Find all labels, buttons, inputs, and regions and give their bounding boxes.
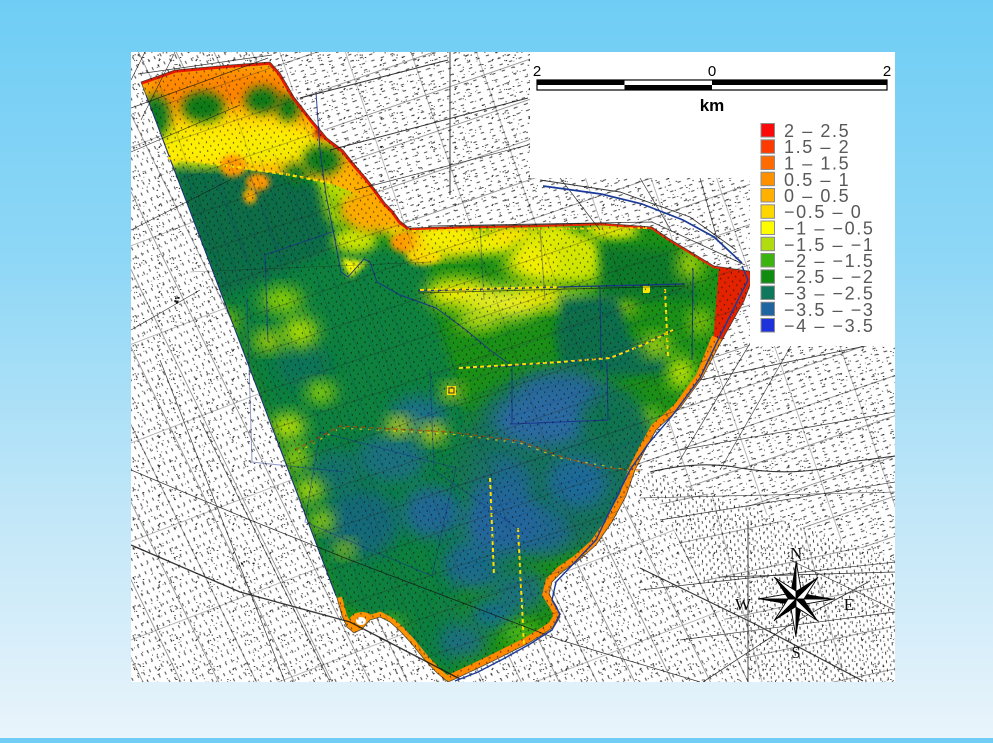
svg-text:S: S (791, 643, 800, 662)
svg-text:E: E (844, 595, 854, 614)
svg-text:2: 2 (533, 63, 541, 80)
svg-text:2: 2 (883, 63, 891, 80)
svg-text:N: N (790, 544, 802, 563)
svg-text:W: W (735, 595, 752, 614)
svg-text:0: 0 (708, 63, 716, 80)
svg-text:−4 – −3.5: −4 – −3.5 (784, 316, 874, 336)
svg-text:km: km (700, 96, 725, 115)
